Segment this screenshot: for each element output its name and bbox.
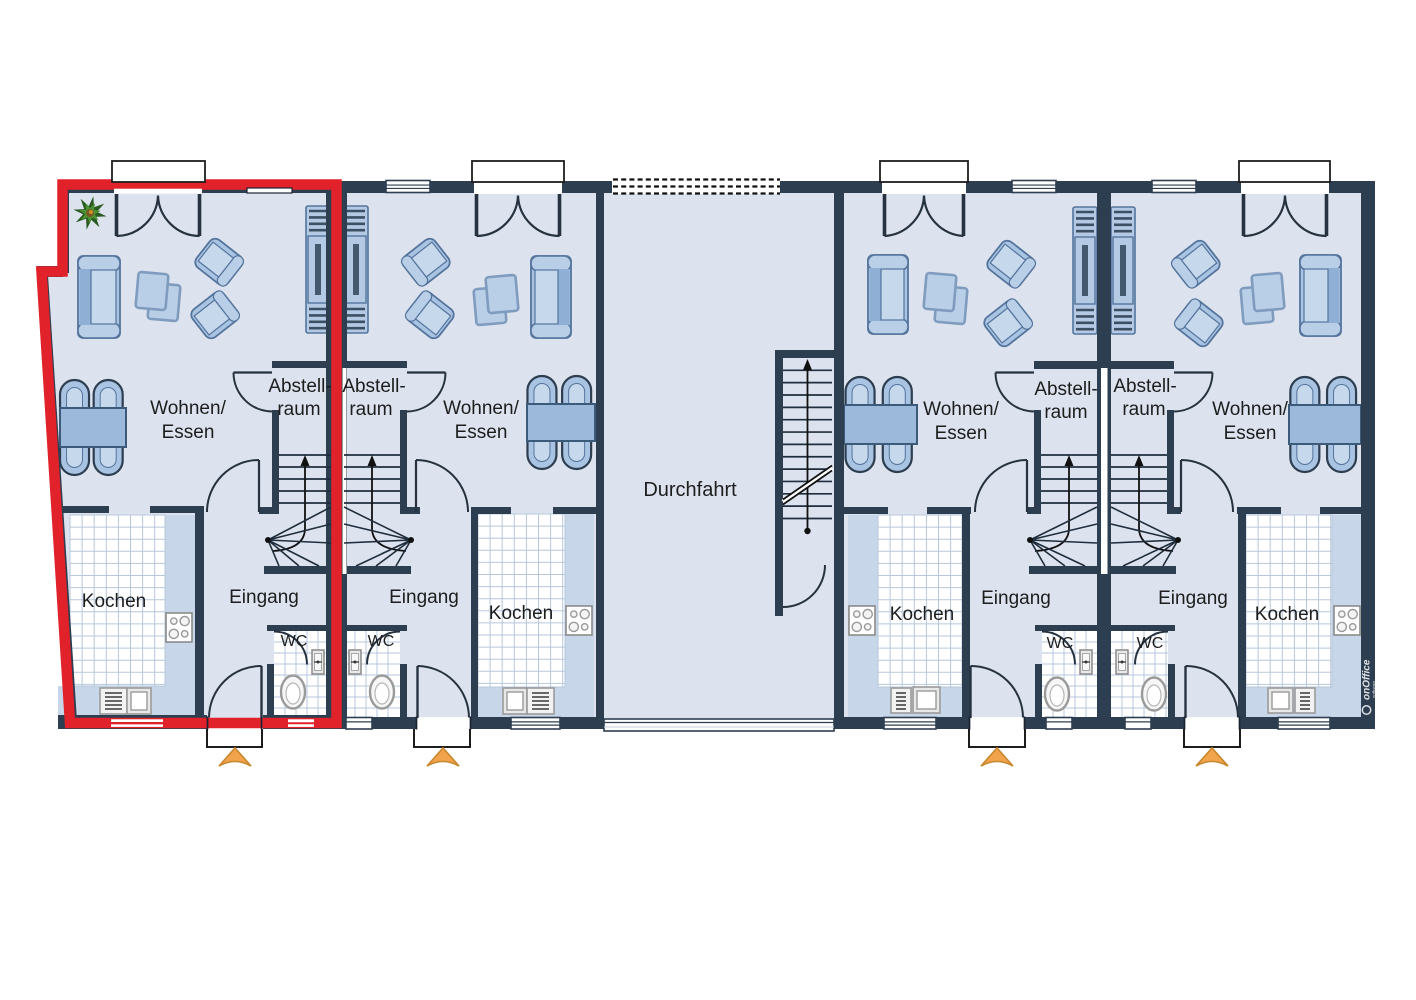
- svg-text:Eingang: Eingang: [981, 588, 1051, 609]
- svg-text:WC: WC: [1137, 635, 1164, 652]
- svg-text:Essen: Essen: [935, 423, 988, 444]
- svg-text:Durchfahrt: Durchfahrt: [643, 479, 737, 501]
- svg-text:Kochen: Kochen: [489, 603, 553, 624]
- svg-text:Kochen: Kochen: [1255, 604, 1319, 625]
- svg-text:raum: raum: [349, 399, 392, 420]
- svg-text:Wohnen/: Wohnen/: [923, 399, 999, 420]
- svg-text:Abstell-: Abstell-: [1034, 379, 1097, 400]
- svg-text:Kochen: Kochen: [82, 591, 146, 612]
- svg-text:raum: raum: [1122, 399, 1165, 420]
- svg-text:Wohnen/: Wohnen/: [150, 398, 226, 419]
- svg-text:raum: raum: [277, 399, 320, 420]
- svg-text:Eingang: Eingang: [1158, 588, 1228, 609]
- svg-text:Essen: Essen: [1224, 423, 1277, 444]
- svg-text:WC: WC: [281, 633, 308, 650]
- svg-text:raum: raum: [1044, 402, 1087, 423]
- svg-text:WC: WC: [368, 633, 395, 650]
- svg-text:Essen: Essen: [455, 422, 508, 443]
- svg-text:Abstell-: Abstell-: [342, 376, 405, 397]
- svg-text:Essen: Essen: [162, 422, 215, 443]
- svg-text:Eingang: Eingang: [389, 587, 459, 608]
- svg-text:Kochen: Kochen: [890, 604, 954, 625]
- svg-text:software: software: [1372, 680, 1377, 698]
- svg-text:WC: WC: [1047, 635, 1074, 652]
- svg-text:Abstell-: Abstell-: [1113, 376, 1176, 397]
- svg-text:Wohnen/: Wohnen/: [1212, 399, 1288, 420]
- svg-text:Wohnen/: Wohnen/: [443, 398, 519, 419]
- svg-text:Abstell-: Abstell-: [268, 376, 331, 397]
- svg-text:Eingang: Eingang: [229, 587, 299, 608]
